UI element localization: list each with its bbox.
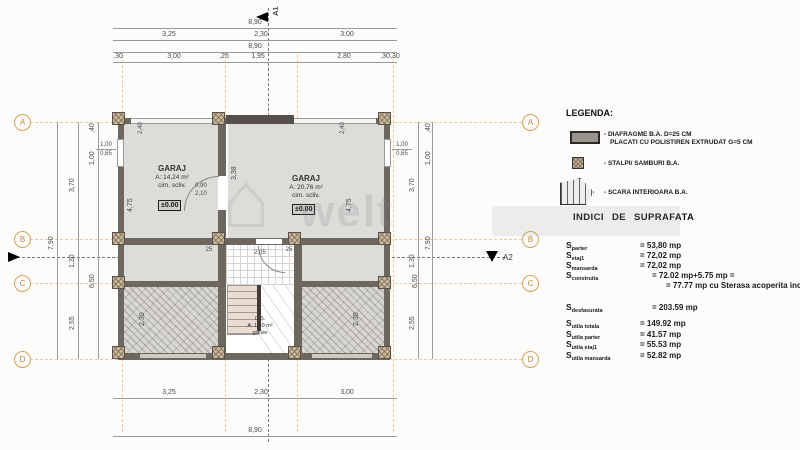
indici-value: = 72.02 mp+5.75 mp =	[652, 271, 735, 280]
dim-label: 1,00	[96, 142, 116, 150]
legend-scara-icon	[560, 178, 594, 205]
dim-label: 3,00	[297, 389, 397, 396]
dim-line	[432, 122, 433, 359]
dim-label: 7,90	[48, 236, 55, 250]
dim-label: 6,50	[412, 274, 419, 288]
dim-line	[113, 28, 397, 29]
indici-value: = 72,02 mp	[640, 261, 681, 270]
legend-stalpi-label: - STALPI/ SAMBURI B.A.	[604, 160, 679, 167]
grid-bubble-d-right: D	[522, 351, 539, 368]
wall-row-c-left	[124, 281, 218, 287]
dim-label: 3,25	[113, 389, 225, 396]
dim-label: 2,05	[238, 250, 282, 256]
post	[112, 346, 125, 359]
indici-value: = 149.92 mp	[640, 319, 686, 328]
dim-label: 3,70	[69, 178, 76, 192]
garage-left-level-tag: ±0.00	[158, 200, 181, 211]
dim-label: 2,30	[225, 389, 297, 396]
post	[378, 112, 391, 125]
section-marker-left-icon	[8, 252, 20, 262]
dim-line	[113, 40, 397, 41]
stair-name: C.S.	[226, 316, 294, 323]
dim-label: 3,00	[297, 31, 397, 38]
watermark-house-icon: ⌂	[222, 160, 270, 240]
dim-label: 3,00	[124, 53, 224, 60]
dim-line	[113, 436, 397, 437]
garage-left-area: A: 14,24 m²	[124, 174, 220, 182]
legend-stalpi-icon	[572, 157, 584, 169]
stair-finish: gresie	[226, 330, 294, 337]
dim-label: 4,75	[127, 198, 134, 212]
dim-label: ,40	[89, 123, 96, 133]
watermark-text: welt	[300, 190, 394, 234]
dim-line	[57, 122, 58, 359]
garage-left-name: GARAJ	[124, 164, 220, 174]
indici-row: Sutila mansarda= 52.82 mp	[566, 350, 681, 362]
dim-label: 2,10	[186, 191, 216, 197]
legend-diafragme-swatch	[570, 131, 600, 144]
dim-label: 1,30	[409, 254, 416, 268]
section-marker-a1-icon	[256, 12, 268, 22]
section-marker-a2-icon	[486, 251, 498, 262]
wall-stair-left	[218, 238, 226, 353]
dim-label: 8,90	[113, 43, 397, 50]
dim-label: 0,65	[392, 151, 412, 157]
dim-label: 1,30	[69, 254, 76, 268]
dim-label: 8,90	[113, 427, 397, 434]
legend-diafragme-label: - DIAFRAGME B.A. D=25 CM	[604, 131, 692, 138]
dim-label: 3,25	[113, 31, 225, 38]
dim-label: ,40	[425, 123, 432, 133]
legend-scara-label: - SCARA INTERIOARA B.A.	[604, 189, 688, 196]
post	[112, 112, 125, 125]
stair-area: A: 1,40 m²	[226, 323, 294, 330]
legend-title: LEGENDA:	[566, 108, 613, 118]
indici-subscript: utila mansarda	[572, 356, 611, 362]
dim-line	[418, 122, 419, 359]
dim-label: 25	[282, 247, 296, 253]
wall-under-garage-left	[124, 238, 218, 245]
wall-party-cap	[226, 115, 294, 124]
wall-row-c-right	[302, 281, 384, 287]
dim-label: ,30,30	[368, 53, 412, 60]
grid-bubble-a-right: A	[522, 114, 539, 131]
post	[378, 276, 391, 289]
dim-label: 2,55	[69, 316, 76, 330]
indici-value: = 203.59 mp	[652, 303, 698, 312]
indici-row: = 77.77 mp cu Sterasa acoperita inclusa	[566, 281, 800, 290]
dim-label: 1,00	[392, 142, 412, 150]
dim-label: 2,30	[139, 312, 146, 326]
post	[112, 232, 125, 245]
grid-bubble-b-left: B	[14, 231, 31, 248]
room-lower-right	[302, 245, 384, 281]
indici-value: = 52.82 mp	[640, 351, 681, 360]
dim-label: 8,90	[113, 19, 397, 26]
grid-bubble-d-left: D	[14, 351, 31, 368]
dim-label: 1,95	[228, 53, 288, 60]
window-left	[117, 139, 124, 167]
indici-value: = 41.57 mp	[640, 330, 681, 339]
dim-line	[113, 398, 397, 399]
window-right	[384, 139, 391, 167]
post	[378, 346, 391, 359]
terrace-edge-left	[140, 354, 206, 358]
dim-label: 2,30	[353, 312, 360, 326]
post	[112, 276, 125, 289]
dim-line	[98, 122, 99, 359]
grid-bubble-a-left: A	[14, 114, 31, 131]
terrace-edge-right	[312, 354, 372, 358]
watermark-block	[492, 206, 680, 236]
indici-value: = 53,80 mp	[640, 241, 681, 250]
section-marker-a1-label: A1	[272, 6, 280, 16]
dim-label: 2,40	[340, 122, 346, 134]
indici-row: Sdesfasurata= 203.59 mp	[566, 302, 698, 314]
dim-label: 1,00	[425, 151, 432, 165]
section-marker-a2-label: A2	[503, 253, 513, 263]
indici-value: = 72,02 mp	[640, 251, 681, 260]
dim-label: 2,40	[138, 122, 144, 134]
indici-value: = 77.77 mp cu Sterasa acoperita inclusa	[666, 281, 800, 290]
stair-lower-floor	[227, 335, 259, 353]
dim-label: 3,70	[409, 178, 416, 192]
dim-label: 7,90	[425, 236, 432, 250]
post	[212, 346, 225, 359]
garage-door-right	[294, 118, 376, 124]
dim-label: 2,30	[225, 31, 297, 38]
legend-diafragme-label2: PLACATI CU POLISTIREN EXTRUDAT G=5 CM	[610, 139, 753, 146]
terrace-right	[302, 287, 384, 353]
grid-bubble-c-right: C	[522, 275, 539, 292]
dim-label: 2,55	[409, 316, 416, 330]
dim-line	[113, 62, 397, 63]
dim-label: 0,90	[186, 183, 216, 189]
dim-label: 0,65	[96, 151, 116, 157]
wall-stair-right	[294, 238, 302, 353]
post	[212, 112, 225, 125]
post	[288, 346, 301, 359]
wall-under-garage-right	[302, 238, 384, 245]
indici-subscript: desfasurata	[572, 308, 603, 314]
dim-label: 25	[202, 247, 216, 253]
dim-label: 1,00	[89, 151, 96, 165]
dim-label: 6,50	[89, 274, 96, 288]
dim-line	[78, 122, 79, 359]
axis-vertical-4	[393, 55, 394, 432]
indici-value: = 55.53 mp	[640, 340, 681, 349]
grid-bubble-c-left: C	[14, 275, 31, 292]
